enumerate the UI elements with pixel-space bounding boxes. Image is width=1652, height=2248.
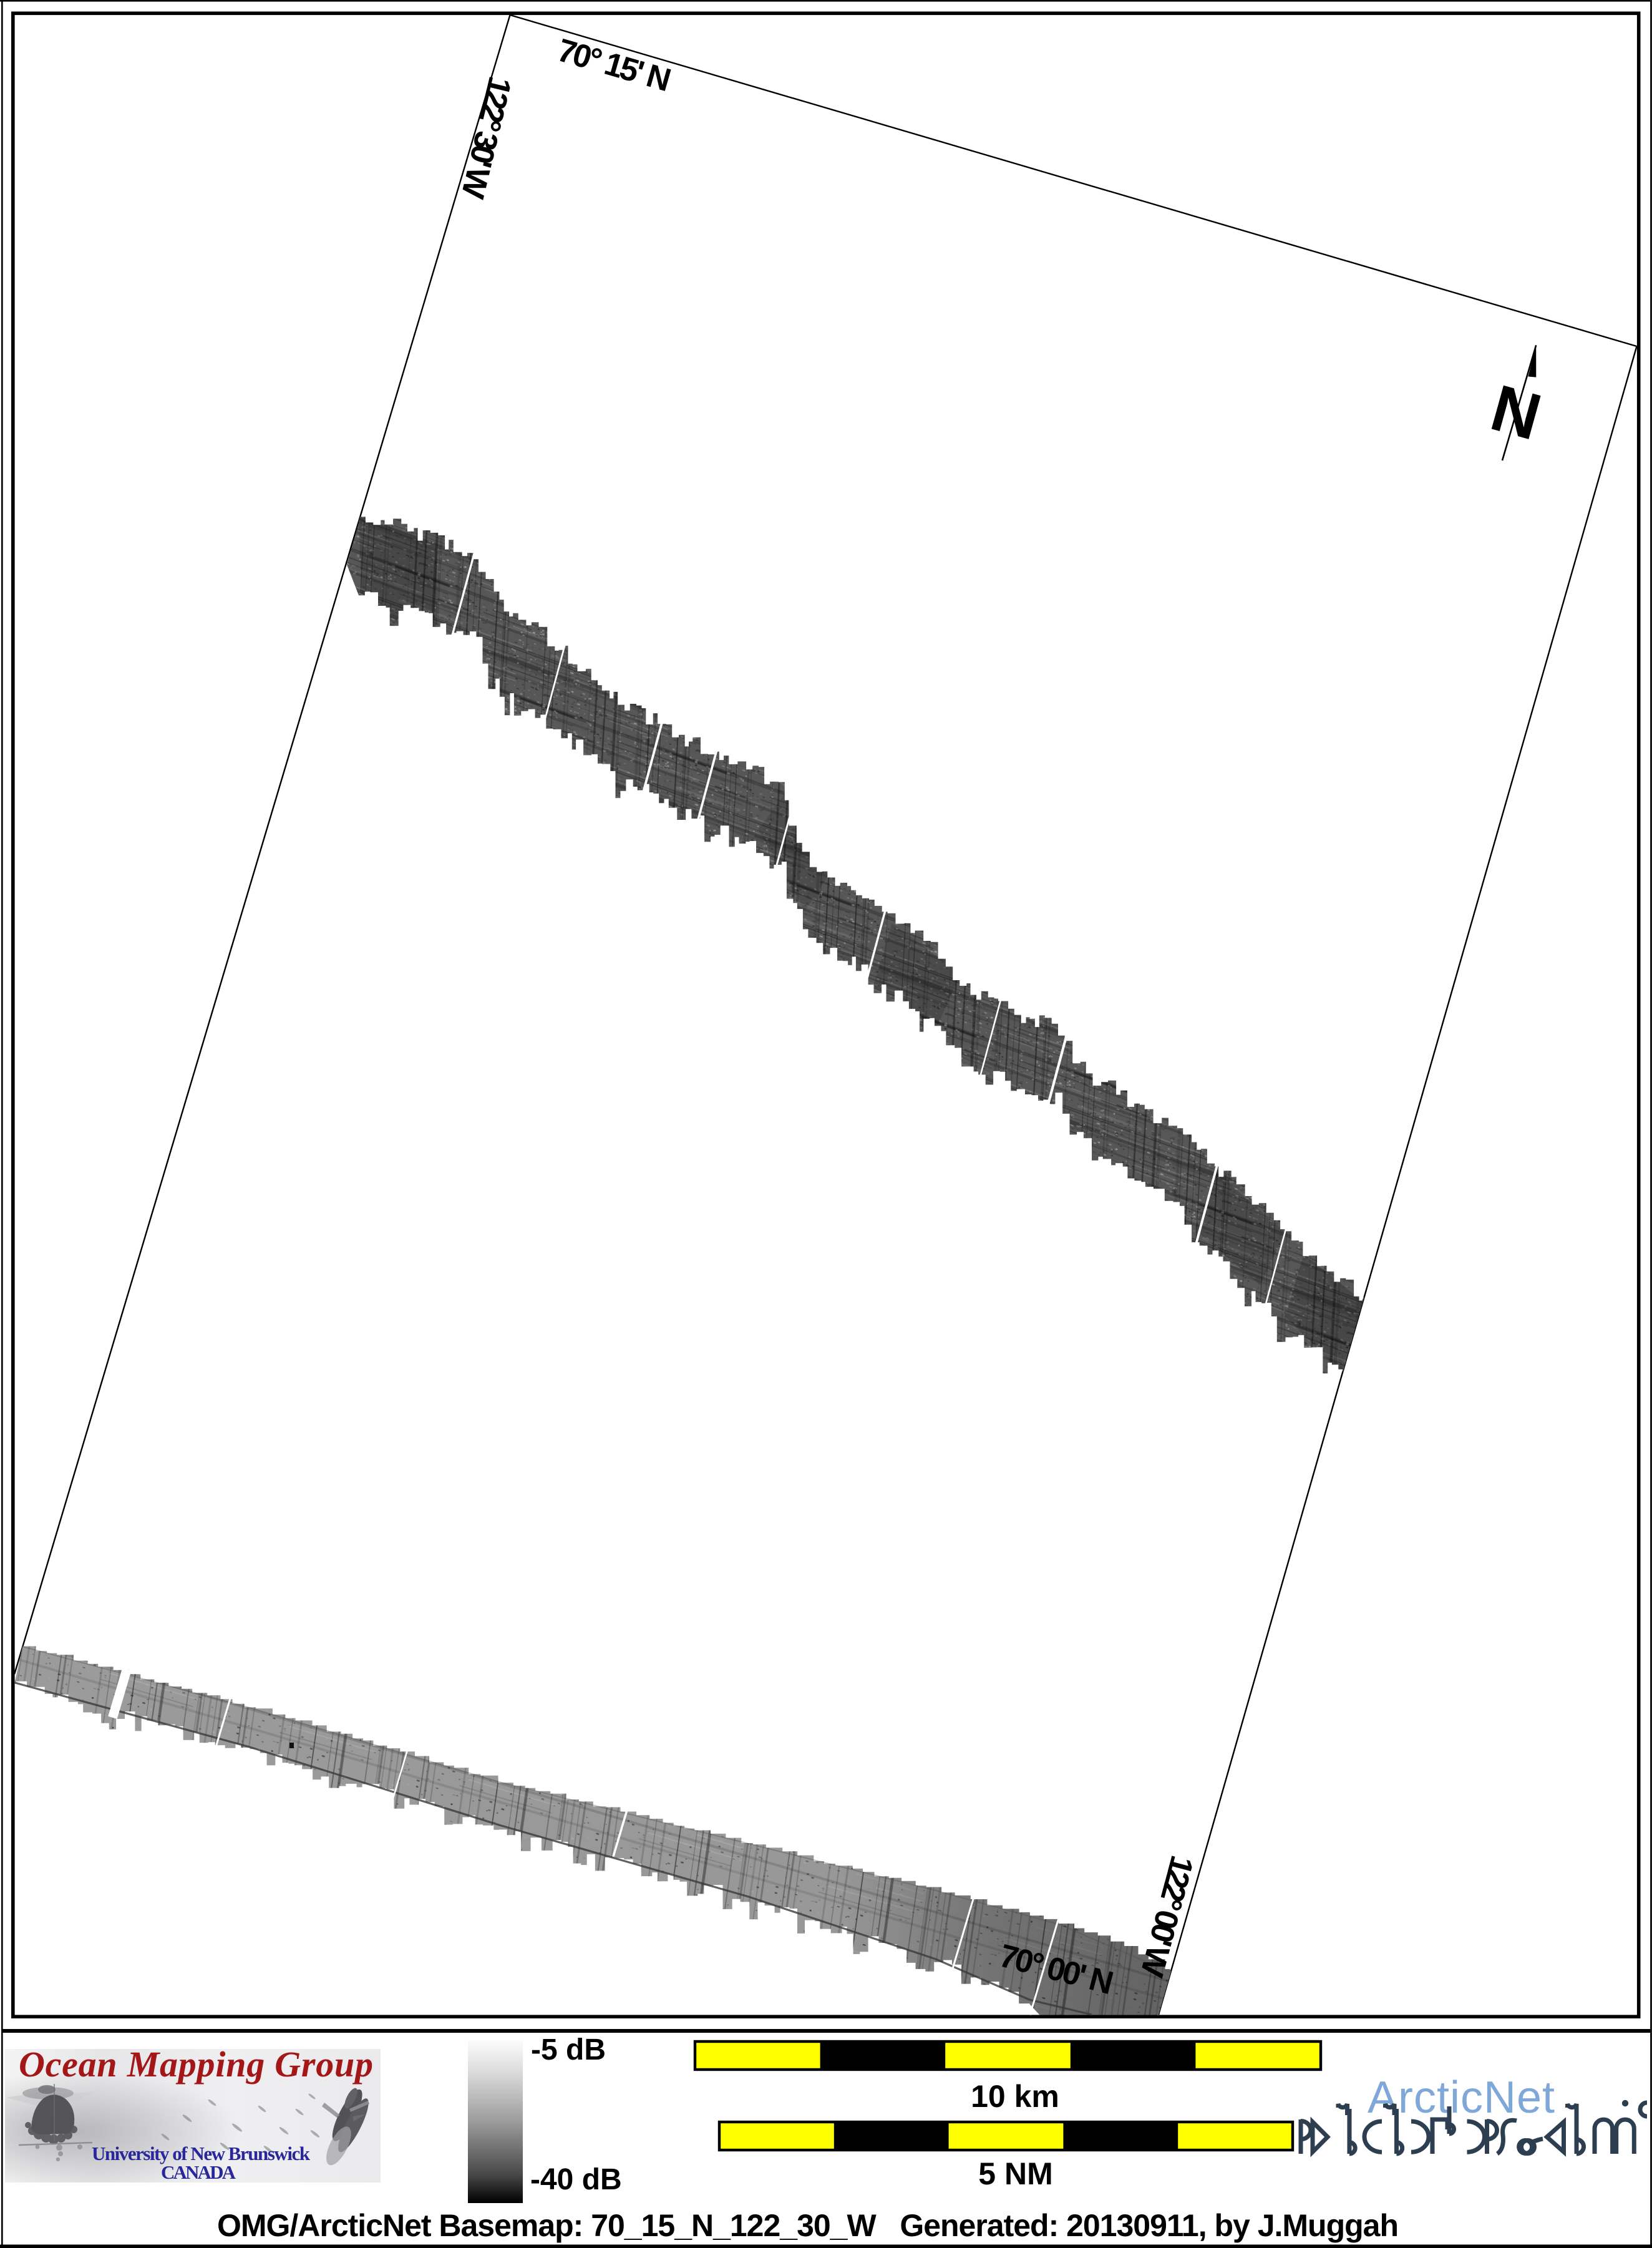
svg-text:-40 dB: -40 dB (530, 2163, 622, 2196)
svg-text:OMG/ArcticNet Basemap: 70_15_N: OMG/ArcticNet Basemap: 70_15_N_122_30_W … (217, 2208, 1399, 2243)
svg-text:Ocean Mapping Group: Ocean Mapping Group (19, 2044, 373, 2085)
svg-text:5 NM: 5 NM (978, 2156, 1052, 2191)
svg-text:CANADA: CANADA (161, 2161, 236, 2183)
svg-text:-5 dB: -5 dB (531, 2033, 606, 2066)
svg-text:10 km: 10 km (971, 2079, 1059, 2114)
